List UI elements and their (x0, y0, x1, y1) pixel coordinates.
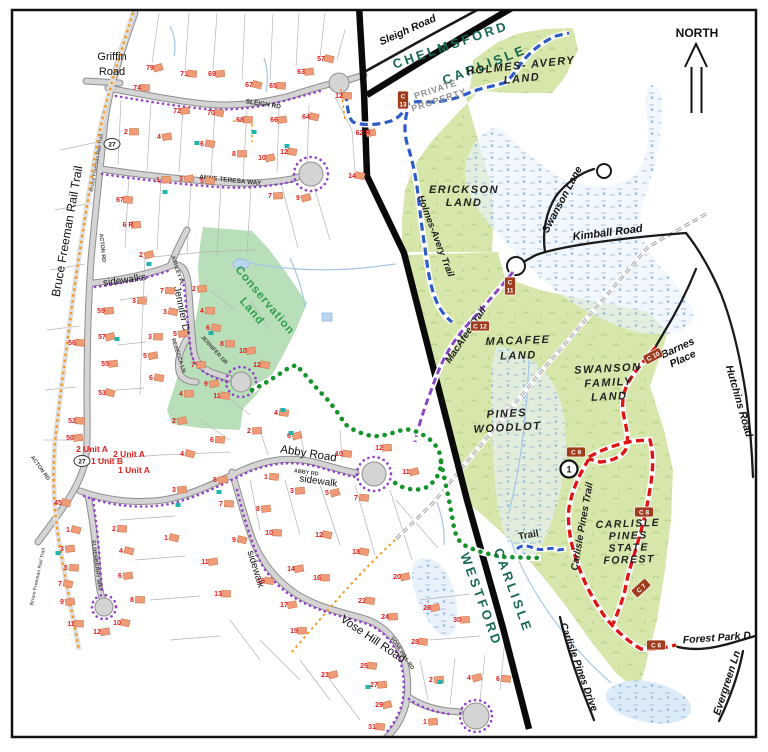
house-marker: 70 (207, 109, 224, 117)
acton-rd-label: ACTON RD (97, 233, 106, 262)
house-marker: 14 (348, 172, 365, 180)
pool (115, 337, 120, 341)
svg-text:LAND: LAND (500, 349, 537, 362)
house-marker: 18 (352, 548, 369, 556)
house-marker: 27 (370, 681, 387, 689)
house-number: 4 (274, 410, 278, 417)
house-marker: 10 (239, 347, 256, 355)
house-number: 20 (393, 574, 401, 581)
bruce-freeman-small-label2: Bruce Freeman Rail Trail (29, 547, 47, 606)
house-number: 10 (239, 348, 247, 355)
house-marker: 10 (113, 619, 130, 627)
pool (56, 551, 61, 555)
house-number: 5 (200, 178, 204, 185)
house-number: 59 (97, 308, 105, 315)
svg-text:1: 1 (566, 465, 571, 475)
house-number: 9 (60, 599, 64, 606)
pool (289, 431, 294, 435)
house-number: 3 (179, 176, 183, 183)
house-number: 27 (370, 682, 378, 689)
house-marker: 8 (232, 150, 247, 158)
svg-text:MACAFEE: MACAFEE (485, 334, 550, 348)
house-number: 25 (360, 663, 368, 670)
house-number: 2 (124, 129, 128, 136)
svg-text:27: 27 (108, 141, 116, 148)
house-marker: 1 (156, 176, 171, 184)
house-number: 2 (247, 428, 251, 435)
house-marker: 10 (335, 450, 352, 458)
house-marker: 2 (124, 129, 138, 137)
house-marker: 20 (393, 573, 410, 581)
house-marker: 19 (290, 627, 306, 635)
house-number: 4 (180, 451, 184, 458)
house-marker: 52 (68, 417, 85, 425)
house-number: 7 (268, 193, 272, 200)
house-marker: 11 (201, 558, 218, 566)
house-number: 5 (64, 565, 68, 572)
house-marker: 21 (321, 671, 338, 679)
house-number: 6 (200, 141, 204, 148)
house-number: 16 (313, 575, 321, 582)
house-marker: 12 (315, 531, 332, 539)
house-number: 3 (60, 546, 64, 553)
house-number: 5 (213, 477, 217, 484)
house-marker: 12 (375, 444, 392, 452)
house-marker: 2 (139, 250, 154, 259)
house-marker: 69 (208, 70, 225, 78)
svg-text:C 6: C 6 (651, 643, 662, 650)
house-number: 10 (335, 451, 343, 458)
house-marker: 57 (317, 55, 334, 63)
house-marker: 63 (297, 68, 314, 76)
house-marker: 57 (98, 332, 115, 341)
house-number: 56 (68, 340, 76, 347)
pool (252, 130, 257, 134)
junction-marker-1: 1 (561, 461, 578, 478)
house-marker: 9 (60, 598, 75, 606)
house-marker: 12 (335, 92, 351, 100)
house-number: 11 (402, 469, 410, 476)
house-marker: 79 (146, 63, 163, 72)
house-marker: 25 (360, 662, 377, 670)
house-number: 4 (179, 391, 183, 398)
house-marker: 17 (280, 601, 297, 609)
house-marker: 7 (354, 494, 369, 502)
house-marker: 9 (204, 380, 219, 388)
bruce-freeman-label: Bruce Freeman Rail Trail (49, 165, 86, 298)
house-number: 6 (206, 325, 210, 332)
north-label: NORTH (676, 26, 719, 40)
house-marker: 7 (219, 500, 234, 508)
house-number: 3 (172, 487, 176, 494)
house-marker: 1 (66, 525, 81, 534)
house-marker: 5 (213, 476, 228, 484)
pool (366, 685, 371, 689)
svg-text:LAND: LAND (591, 390, 628, 404)
house-number: 2 (192, 286, 196, 293)
svg-text:PINES: PINES (486, 407, 527, 421)
house-number: 74 (133, 85, 141, 92)
house-marker: 67 (116, 196, 133, 204)
unit-label: 1 Unit A (118, 465, 150, 475)
svg-text:FOREST: FOREST (603, 553, 655, 567)
house-marker: 74 (133, 84, 150, 92)
house-number: 11 (67, 621, 75, 628)
house-marker: 6 (200, 140, 215, 148)
hutchins-road-label: Hutchins Road (723, 364, 755, 439)
house-number: 21 (321, 672, 329, 679)
house-number: 7 (160, 288, 164, 295)
pool (176, 503, 181, 507)
house-marker: 62 R (356, 129, 376, 137)
pool (195, 141, 200, 145)
trail-map: CHELMSFORD CARLISLE WESTFORD CARLISLE HO… (0, 0, 768, 752)
griffin-road-label2: Road (99, 66, 125, 78)
house-marker: 5 (200, 177, 215, 185)
svg-text:27: 27 (78, 458, 86, 465)
house-number: 8 (232, 151, 236, 158)
house-number: 26 (423, 605, 431, 612)
svg-text:C: C (508, 280, 513, 287)
house-number: 67 (116, 197, 124, 204)
trailhead-marker-c13: C13 (398, 91, 409, 109)
svg-text:CARLISLE: CARLISLE (595, 517, 660, 531)
house-marker: 50 (66, 434, 83, 442)
house-number: 69 (208, 71, 216, 78)
house-number: 18 (352, 549, 360, 556)
house-marker: 59 (97, 307, 114, 315)
house-number: 13 (214, 591, 222, 598)
house-marker: 6 (118, 572, 133, 580)
house-marker: 28 (411, 638, 428, 646)
house-number: 12 (253, 362, 261, 369)
house-number: 71 (180, 71, 188, 78)
house-marker: 8 (256, 505, 271, 513)
house-marker: 7 (160, 287, 175, 295)
house-marker: 65 (269, 82, 286, 90)
svg-text:13: 13 (399, 102, 407, 109)
house-marker: 4 (467, 673, 482, 682)
house-number: 57 (317, 56, 325, 63)
house-number: 55 (101, 361, 109, 368)
house-marker: 22 (358, 597, 375, 605)
house-number: 8 (220, 341, 224, 348)
pool (217, 490, 222, 494)
house-number: 52 (68, 418, 76, 425)
house-marker: 31 (368, 723, 385, 731)
house-number: 28 (411, 639, 419, 646)
house-marker: 72 (173, 107, 190, 115)
house-number: 10 (113, 620, 121, 627)
house-number: 9 (204, 381, 208, 388)
house-number: 22 (358, 598, 366, 605)
house-number: 8 (256, 506, 260, 513)
house-number: 12 (280, 149, 288, 156)
house-marker: 24 (381, 613, 398, 621)
house-number: 15 (257, 578, 265, 585)
house-number: 11 (201, 559, 209, 566)
house-number: 7 (191, 362, 195, 369)
house-number: 2 (139, 252, 143, 259)
house-marker: 4 (119, 547, 134, 555)
house-marker: 53 (98, 388, 115, 397)
house-marker: 12 (280, 148, 297, 156)
pool (209, 331, 214, 335)
house-marker: 29 (375, 700, 392, 709)
house-number: 9 (296, 195, 300, 202)
house-marker: 66 (270, 116, 287, 124)
house-marker: 5 (143, 352, 158, 360)
pool (438, 680, 443, 684)
house-marker: 6 R (123, 221, 141, 229)
trailhead-marker-c12: C 12 (471, 321, 490, 331)
house-marker: 10 (265, 529, 282, 537)
house-number: 12 (375, 445, 383, 452)
house-number: 65 (269, 83, 277, 90)
trailhead-marker-c6: C 6 (647, 640, 666, 650)
svg-text:C 9: C 9 (571, 450, 582, 457)
house-number: 10 (265, 530, 273, 537)
house-number: 45 (54, 500, 62, 507)
house-marker: 1 (264, 473, 279, 481)
pool (163, 190, 168, 194)
house-number: 3 (163, 309, 167, 316)
house-number: 1 (423, 719, 427, 726)
house-number: 1 (164, 535, 168, 542)
route-shield: 27 (104, 139, 120, 150)
house-number: 62 R (356, 130, 371, 137)
house-marker: 56 (68, 339, 85, 347)
house-number: 1 (66, 527, 70, 534)
house-number: 3 (148, 334, 152, 341)
evergreen-lane-label: Evergreen Ln (711, 649, 743, 717)
north-arrow: NORTH (676, 26, 719, 113)
house-number: 14 (287, 566, 295, 573)
house-number: 64 (302, 114, 310, 121)
house-marker: 11 (402, 467, 419, 476)
house-marker: 3 (290, 487, 305, 495)
house-marker: 3 (148, 333, 163, 341)
house-marker: 1 (423, 718, 438, 726)
house-marker: 1 (164, 534, 179, 542)
house-marker: 16 (313, 575, 329, 583)
house-marker: 7 (191, 361, 206, 369)
house-number: 68 (236, 117, 244, 124)
house-marker: 5 (173, 330, 188, 338)
house-number: 11 (213, 393, 221, 400)
house-marker: 14 (287, 565, 304, 573)
house-marker: 7 (268, 192, 283, 200)
house-number: 4 (119, 548, 123, 555)
abby-sidewalk-label: sidewalk (299, 473, 339, 489)
house-number: 19 (290, 628, 298, 635)
house-marker: 71 (180, 70, 197, 78)
acton-rd-label2: ACTON RD (29, 455, 51, 482)
house-number: 6 (118, 573, 122, 580)
barnes-place-label: Barnes Place (659, 335, 702, 372)
house-marker: 2 (247, 427, 262, 435)
house-marker: 55 (101, 360, 118, 368)
house-marker: 4 (157, 133, 172, 141)
house-number: 10 (258, 155, 266, 162)
map-canvas: CHELMSFORD CARLISLE WESTFORD CARLISLE HO… (0, 0, 768, 752)
house-number: 4 (467, 675, 471, 682)
svg-text:LAND: LAND (446, 197, 483, 209)
house-number: 30 (453, 617, 461, 624)
pond (322, 313, 332, 321)
house-marker: 67 (245, 80, 262, 89)
house-number: 6 (210, 437, 214, 444)
forest-park-label: Forest Park D (682, 630, 751, 647)
house-number: 2 (112, 526, 116, 533)
house-number: 1 (264, 474, 268, 481)
house-number: 2 (429, 677, 433, 684)
trailhead-marker-c8: C 8 (635, 507, 654, 517)
house-marker: 12 (93, 628, 110, 636)
house-marker: 9 (296, 194, 311, 202)
house-marker: 8 (130, 596, 145, 604)
house-number: 53 (98, 390, 106, 397)
house-marker: 10 (258, 154, 275, 162)
house-number: 24 (381, 614, 389, 621)
house-number: 8 (130, 597, 134, 604)
house-number: 12 (315, 532, 323, 539)
house-marker: 11 (67, 620, 83, 628)
trailhead-marker-c11: C11 (505, 277, 516, 295)
house-number: 17 (280, 602, 288, 609)
svg-text:11: 11 (507, 288, 514, 295)
house-number: 1 (156, 177, 160, 184)
swanson-loop (597, 164, 611, 178)
house-number: 50 (66, 435, 74, 442)
house-number: 5 (173, 331, 177, 338)
svg-text:C 12: C 12 (473, 324, 487, 331)
house-number: 57 (98, 334, 106, 341)
house-marker: 3 (132, 297, 147, 305)
house-number: 7 (58, 581, 62, 588)
house-marker: 4 (200, 307, 215, 315)
house-marker: 9 (232, 536, 247, 544)
house-number: 3 (290, 488, 294, 495)
pool (285, 144, 290, 148)
pool (281, 408, 286, 412)
house-marker: 8 (220, 341, 234, 349)
house-number: 6 R (123, 222, 134, 229)
house-number: 70 (207, 110, 215, 117)
sleigh-road-label: Sleigh Road (378, 12, 439, 48)
svg-text:ERICKSON: ERICKSON (429, 184, 499, 196)
house-marker: 3 (60, 545, 75, 553)
house-number: 63 (297, 69, 305, 76)
house-number: 12 (335, 93, 343, 100)
house-marker: 3 (172, 486, 187, 494)
house-number: 4 (157, 134, 161, 141)
house-number: 7 (354, 495, 358, 502)
house-marker: 6 (210, 436, 225, 444)
house-marker: 6 (496, 675, 511, 683)
house-number: 12 (93, 629, 101, 636)
svg-text:C 8: C 8 (639, 510, 650, 517)
house-number: 14 (348, 173, 356, 180)
house-marker: 30 (453, 616, 470, 624)
house-number: 2 (172, 418, 176, 425)
svg-text:FAMILY: FAMILY (584, 376, 633, 391)
house-marker: 11 (213, 392, 230, 400)
house-marker: 6 (206, 324, 221, 332)
house-marker: 3 (163, 308, 178, 316)
house-number: 6 (149, 375, 153, 382)
house-marker: 2 (112, 525, 127, 533)
house-number: 5 (325, 490, 329, 497)
house-number: 5 (143, 353, 147, 360)
house-marker: 5 (325, 488, 340, 497)
house-marker: 64 (302, 113, 319, 121)
house-number: 72 (173, 108, 181, 115)
house-number: 4 (200, 308, 204, 315)
house-number: 3 (132, 298, 136, 305)
house-marker: 5 (64, 564, 79, 572)
house-marker: 6 (149, 374, 164, 382)
house-marker: 68 (236, 116, 253, 124)
unit-label: 2 Unit A (76, 444, 108, 454)
house-number: 9 (232, 537, 236, 544)
sidewalks-label: sidewalks (102, 272, 146, 289)
house-marker: 4 (180, 449, 195, 458)
route-shield: 27 (74, 456, 90, 467)
house-number: 31 (368, 724, 376, 731)
house-marker: 4 (179, 390, 194, 398)
house-marker: 7 (58, 580, 73, 588)
griffin-road-label: Griffin (97, 51, 126, 63)
house-number: 29 (375, 702, 383, 709)
svg-text:C: C (401, 94, 406, 101)
house-number: 6 (496, 676, 500, 683)
house-number: 7 (219, 501, 223, 508)
trailhead-marker-c9: C 9 (567, 447, 586, 457)
house-number: 79 (146, 65, 154, 72)
house-marker: 13 (214, 590, 230, 598)
house-marker: 2 (192, 285, 207, 293)
pool (147, 262, 152, 266)
house-number: 67 (245, 82, 253, 89)
house-number: 66 (270, 117, 278, 124)
